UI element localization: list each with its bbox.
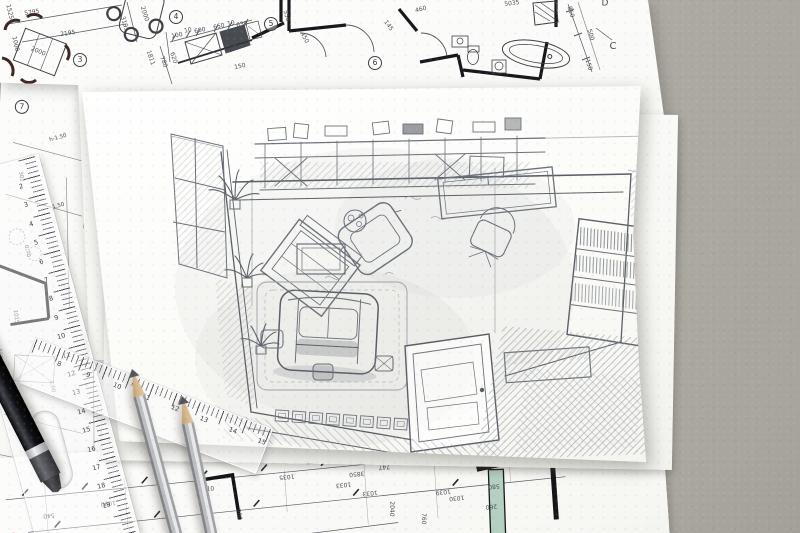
dimension-label: 580: [488, 482, 500, 489]
plan-bathroom: [452, 1, 572, 73]
ruler-number: 15: [257, 437, 267, 446]
dimension-label: 260: [485, 502, 497, 509]
dimension-label: 760: [420, 513, 426, 525]
plan-marker: 6: [368, 56, 382, 70]
ruler-number: 2: [18, 183, 24, 190]
ruler-number: 3: [23, 202, 29, 209]
ruler-number: 10: [57, 332, 67, 340]
photo-architectural-drawings-scene: 7h-1.503021,500,7010155952,001045: [0, 0, 800, 533]
ruler-number: 16: [87, 445, 97, 453]
ruler-number: 18: [97, 482, 107, 490]
plan-marker: D: [602, 0, 609, 9]
pencil-lead-tip: [126, 367, 140, 378]
sketch-wall-shelving-left: [171, 134, 227, 278]
ruler-number: 9: [85, 371, 91, 379]
dimension-label: 1035: [279, 472, 295, 480]
plan-marker: C: [610, 42, 617, 52]
ruler-number: 15: [82, 426, 92, 434]
dimension-label: 1039: [435, 487, 451, 495]
ruler-number: 8: [56, 360, 62, 368]
ruler-number: 17: [92, 464, 102, 472]
ruler-number: 8: [48, 295, 54, 302]
dimension-label: 1033: [335, 480, 351, 488]
ruler-number: 10: [112, 382, 122, 391]
sketch-bookshelf: [567, 218, 659, 347]
plan-table-b: [102, 0, 170, 48]
dimension-label: 200: [234, 508, 242, 520]
ruler-number: 6: [38, 258, 44, 265]
dimension-label: 3850: [349, 469, 365, 477]
ruler-number: 7: [43, 277, 49, 284]
ruler-number: 13: [199, 415, 209, 424]
dimension-label: 2040: [388, 501, 394, 516]
plan-marker: 5: [264, 17, 278, 31]
ruler-number: 14: [77, 407, 87, 415]
plan-marker: 3: [73, 53, 87, 67]
ruler-number: 19: [102, 501, 112, 509]
plan-marker: 4: [169, 10, 183, 24]
ruler-number: 5: [33, 239, 39, 246]
plan-walls: [252, 0, 556, 79]
plan-chairs-arcs: [2, 15, 69, 102]
pencil-lead-tip: [176, 395, 189, 405]
ruler-number: 9: [54, 314, 60, 321]
dimension-label: 1033: [362, 489, 378, 497]
dimension-label: 1030: [449, 494, 465, 502]
ruler-number: 4: [28, 221, 34, 228]
ruler-number: 14: [228, 426, 238, 435]
